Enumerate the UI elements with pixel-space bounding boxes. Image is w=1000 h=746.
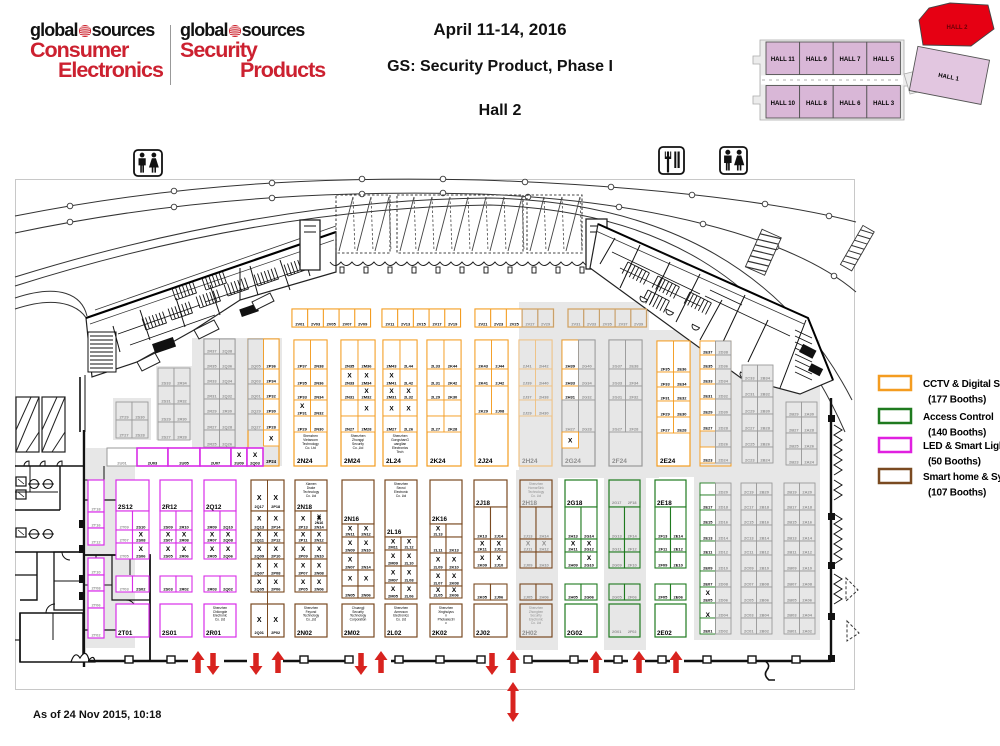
svg-text:2P29: 2P29 — [298, 427, 308, 432]
svg-text:2J08: 2J08 — [495, 409, 505, 414]
svg-text:2B25: 2B25 — [789, 444, 799, 449]
svg-text:2C33: 2C33 — [745, 376, 755, 381]
svg-text:2G33: 2G33 — [612, 381, 623, 386]
svg-text:2A12: 2A12 — [802, 550, 812, 555]
svg-text:2R01: 2R01 — [206, 630, 222, 637]
svg-text:2R09: 2R09 — [207, 525, 217, 530]
svg-text:2Q03: 2Q03 — [250, 461, 261, 466]
svg-text:2N08: 2N08 — [314, 571, 324, 576]
svg-text:2A02: 2A02 — [802, 629, 812, 634]
svg-text:X: X — [237, 452, 242, 459]
svg-text:X: X — [273, 495, 278, 502]
svg-text:X: X — [301, 546, 306, 553]
svg-text:2P07: 2P07 — [298, 571, 308, 576]
svg-text:2A16: 2A16 — [802, 520, 812, 525]
svg-text:2R34: 2R34 — [177, 381, 187, 386]
svg-text:2J09: 2J09 — [524, 563, 534, 568]
svg-text:2M36: 2M36 — [361, 364, 372, 369]
svg-text:LED & Smart Lighting: LED & Smart Lighting — [923, 441, 1000, 452]
svg-text:X: X — [480, 555, 485, 562]
svg-text:2Q06: 2Q06 — [223, 554, 234, 559]
svg-text:X: X — [587, 555, 592, 562]
svg-text:2K16: 2K16 — [432, 516, 448, 523]
svg-text:2H33: 2H33 — [565, 381, 575, 386]
svg-text:2H31: 2H31 — [565, 395, 575, 400]
svg-text:2V13: 2V13 — [401, 322, 411, 327]
svg-text:2S28: 2S28 — [135, 433, 145, 438]
svg-text:2M07: 2M07 — [388, 578, 399, 583]
svg-text:2R35: 2R35 — [207, 364, 217, 369]
svg-text:2T02: 2T02 — [91, 633, 101, 638]
svg-text:X: X — [301, 563, 306, 570]
svg-text:2B29: 2B29 — [789, 412, 799, 417]
svg-text:2Q34: 2Q34 — [222, 379, 233, 384]
svg-text:2V29: 2V29 — [541, 322, 551, 327]
svg-text:2P28: 2P28 — [267, 425, 277, 430]
svg-text:2B17: 2B17 — [787, 505, 797, 510]
svg-text:2C01: 2C01 — [744, 629, 754, 634]
svg-text:2G12: 2G12 — [584, 547, 595, 552]
svg-text:2N10: 2N10 — [314, 554, 324, 559]
svg-text:2K10: 2K10 — [449, 565, 459, 570]
svg-text:2S03: 2S03 — [163, 587, 173, 592]
svg-text:2M32: 2M32 — [361, 395, 372, 400]
svg-text:2S07: 2S07 — [163, 538, 173, 543]
svg-text:2L29: 2L29 — [431, 395, 441, 400]
svg-text:2A08: 2A08 — [802, 582, 812, 587]
svg-text:2Q11: 2Q11 — [254, 538, 264, 543]
svg-text:HALL 6: HALL 6 — [840, 101, 862, 107]
svg-text:2F14: 2F14 — [628, 534, 638, 539]
svg-text:2Q10: 2Q10 — [223, 525, 234, 530]
svg-text:2E17: 2E17 — [703, 505, 713, 510]
svg-text:2J06: 2J06 — [494, 595, 504, 600]
svg-text:2E23: 2E23 — [703, 458, 713, 463]
svg-text:2V15: 2V15 — [417, 322, 427, 327]
svg-text:2G13: 2G13 — [612, 534, 623, 539]
svg-text:X: X — [257, 563, 262, 570]
svg-text:2A30: 2A30 — [804, 412, 814, 417]
svg-text:2C25: 2C25 — [745, 442, 755, 447]
svg-text:2R29: 2R29 — [207, 409, 217, 414]
svg-text:2B05: 2B05 — [787, 598, 797, 603]
svg-text:2M28: 2M28 — [361, 427, 372, 432]
svg-text:HALL 11: HALL 11 — [771, 57, 796, 63]
svg-text:2L07: 2L07 — [433, 581, 443, 586]
svg-text:X: X — [257, 516, 262, 523]
svg-text:X: X — [348, 540, 353, 547]
svg-text:2C13: 2C13 — [744, 536, 754, 541]
svg-text:2C23: 2C23 — [745, 458, 755, 463]
svg-text:2K43: 2K43 — [478, 364, 488, 369]
svg-text:2K08: 2K08 — [449, 581, 459, 586]
svg-text:2G17: 2G17 — [612, 501, 621, 505]
svg-text:2V27: 2V27 — [525, 322, 534, 327]
svg-text:2P11: 2P11 — [298, 538, 308, 543]
svg-text:2B20: 2B20 — [759, 490, 769, 495]
svg-text:2A18: 2A18 — [802, 505, 812, 510]
svg-text:2B06: 2B06 — [759, 598, 769, 603]
svg-text:2B13: 2B13 — [787, 536, 797, 541]
svg-text:2M11: 2M11 — [388, 545, 399, 550]
svg-text:X: X — [257, 495, 262, 502]
svg-text:2T05: 2T05 — [120, 554, 130, 559]
svg-text:2T01: 2T01 — [118, 630, 133, 637]
svg-text:2B24: 2B24 — [760, 458, 770, 463]
svg-text:2D12: 2D12 — [718, 550, 728, 555]
svg-text:2V35: 2V35 — [603, 322, 613, 327]
svg-text:2D20: 2D20 — [718, 490, 728, 495]
svg-text:2G32: 2G32 — [582, 395, 593, 400]
svg-text:2E10: 2E10 — [674, 563, 684, 568]
svg-text:2V09: 2V09 — [358, 322, 368, 327]
svg-text:Tech: Tech — [397, 450, 404, 454]
svg-text:X: X — [257, 546, 262, 553]
svg-text:X: X — [300, 403, 305, 410]
svg-text:2E36: 2E36 — [677, 367, 687, 372]
svg-text:2K06: 2K06 — [449, 593, 459, 598]
svg-text:HALL 7: HALL 7 — [840, 57, 862, 63]
svg-text:2G31: 2G31 — [612, 395, 623, 400]
svg-text:X: X — [391, 586, 396, 593]
svg-text:Smart home & Systems: Smart home & Systems — [923, 472, 1000, 483]
svg-text:2H14: 2H14 — [539, 534, 549, 539]
svg-text:X: X — [364, 406, 369, 413]
svg-text:2Q05: 2Q05 — [251, 364, 262, 369]
svg-text:2F06: 2F06 — [628, 595, 638, 600]
svg-text:2F10: 2F10 — [628, 563, 638, 568]
svg-text:2Q08: 2Q08 — [223, 538, 234, 543]
svg-text:X: X — [407, 553, 412, 560]
svg-text:2B26: 2B26 — [760, 442, 770, 447]
svg-text:2P14: 2P14 — [271, 525, 281, 530]
svg-text:2E15: 2E15 — [703, 520, 713, 525]
svg-text:2J39: 2J39 — [523, 381, 533, 386]
svg-text:X: X — [452, 557, 457, 564]
svg-text:2L06: 2L06 — [404, 594, 414, 599]
svg-text:X: X — [182, 546, 187, 553]
svg-text:2P31: 2P31 — [298, 411, 308, 416]
svg-text:2P06: 2P06 — [271, 587, 281, 592]
svg-text:2Q26: 2Q26 — [222, 442, 233, 447]
svg-text:2Q02: 2Q02 — [223, 587, 234, 592]
svg-text:2F13: 2F13 — [658, 534, 668, 539]
svg-text:2S08: 2S08 — [136, 538, 146, 543]
svg-text:2M09: 2M09 — [388, 561, 399, 566]
svg-text:2G06: 2G06 — [584, 595, 595, 600]
svg-text:Co.,Ltd: Co.,Ltd — [353, 446, 364, 450]
svg-text:2B30: 2B30 — [760, 409, 770, 414]
svg-text:2Q07: 2Q07 — [254, 571, 265, 576]
svg-text:(50 Booths): (50 Booths) — [928, 457, 981, 468]
svg-text:2T09: 2T09 — [120, 525, 130, 530]
svg-text:2B16: 2B16 — [759, 520, 769, 525]
svg-text:2L42: 2L42 — [404, 381, 414, 386]
svg-text:2H05: 2H05 — [568, 595, 578, 600]
svg-text:2U03: 2U03 — [148, 461, 158, 466]
svg-text:2L32: 2L32 — [404, 395, 414, 400]
svg-text:2C03: 2C03 — [744, 613, 754, 618]
svg-text:2B19: 2B19 — [787, 490, 797, 495]
svg-text:2K41: 2K41 — [478, 381, 488, 386]
svg-text:2K02: 2K02 — [432, 630, 448, 637]
svg-text:2D34: 2D34 — [718, 379, 728, 384]
svg-text:2N16: 2N16 — [315, 521, 324, 525]
svg-text:2T12: 2T12 — [91, 540, 101, 545]
svg-text:2B32: 2B32 — [760, 392, 770, 397]
svg-text:2P10: 2P10 — [271, 554, 281, 559]
svg-text:2M27: 2M27 — [386, 427, 397, 432]
svg-text:2D06: 2D06 — [718, 598, 728, 603]
svg-text:2J10: 2J10 — [494, 563, 504, 568]
svg-text:2E06: 2E06 — [674, 595, 684, 600]
svg-text:2V19: 2V19 — [448, 322, 458, 327]
svg-text:2N14: 2N14 — [314, 525, 324, 530]
svg-text:2L10: 2L10 — [404, 561, 414, 566]
svg-text:2E31: 2E31 — [703, 394, 713, 399]
svg-text:2N35: 2N35 — [345, 364, 355, 369]
svg-text:2E37: 2E37 — [703, 350, 713, 355]
svg-text:2Q03: 2Q03 — [251, 379, 262, 384]
svg-text:2P13: 2P13 — [298, 525, 308, 530]
svg-text:2R02: 2R02 — [179, 587, 189, 592]
svg-text:2H12: 2H12 — [539, 547, 549, 552]
svg-text:2J11: 2J11 — [524, 547, 533, 552]
svg-text:2G09: 2G09 — [612, 563, 623, 568]
svg-text:2E07: 2E07 — [703, 582, 713, 587]
svg-text:2D24: 2D24 — [718, 458, 728, 463]
svg-text:2L33: 2L33 — [431, 364, 441, 369]
svg-text:2L27: 2L27 — [431, 427, 441, 432]
svg-text:2V05: 2V05 — [327, 322, 337, 327]
svg-text:2A10: 2A10 — [802, 566, 812, 571]
svg-text:2B12: 2B12 — [759, 550, 769, 555]
svg-text:X: X — [348, 557, 353, 564]
svg-text:2C29: 2C29 — [745, 409, 755, 414]
svg-text:As of 24 Nov 2015, 10:18: As of 24 Nov 2015, 10:18 — [33, 709, 161, 721]
svg-text:2N07: 2N07 — [345, 565, 355, 570]
svg-text:2J41: 2J41 — [523, 364, 533, 369]
svg-text:2P05: 2P05 — [298, 587, 308, 592]
svg-text:Co. Ltd: Co. Ltd — [215, 617, 226, 621]
svg-text:2G01: 2G01 — [612, 630, 621, 634]
svg-text:2P12: 2P12 — [271, 538, 281, 543]
svg-text:2T27: 2T27 — [119, 433, 129, 438]
svg-text:2E27: 2E27 — [703, 426, 713, 431]
svg-text:2S05: 2S05 — [163, 554, 173, 559]
svg-text:Access Control: Access Control — [923, 412, 994, 423]
svg-text:2Q28: 2Q28 — [222, 425, 233, 430]
svg-text:2L24: 2L24 — [386, 458, 401, 465]
svg-text:X: X — [364, 373, 369, 380]
svg-text:2V21: 2V21 — [478, 322, 488, 327]
svg-text:Co. Ltd: Co. Ltd — [396, 617, 407, 621]
svg-text:X: X — [317, 514, 322, 521]
svg-text:2E30: 2E30 — [677, 412, 687, 417]
svg-text:X: X — [273, 617, 278, 624]
svg-text:(140 Booths): (140 Booths) — [928, 428, 986, 439]
svg-text:2K42: 2K42 — [448, 381, 458, 386]
svg-text:2P08: 2P08 — [271, 571, 281, 576]
svg-text:2J44: 2J44 — [495, 364, 505, 369]
svg-text:X: X — [210, 546, 215, 553]
svg-text:2C11: 2C11 — [744, 550, 754, 555]
svg-text:2R33: 2R33 — [207, 379, 217, 384]
svg-text:2R27: 2R27 — [207, 425, 217, 430]
svg-text:2P37: 2P37 — [298, 364, 308, 369]
svg-text:2E02: 2E02 — [657, 630, 672, 637]
svg-text:2P35: 2P35 — [298, 381, 308, 386]
svg-text:2G27: 2G27 — [612, 427, 623, 432]
svg-text:2B10: 2B10 — [759, 566, 769, 571]
svg-text:HALL 9: HALL 9 — [806, 57, 828, 63]
svg-text:2M31: 2M31 — [386, 395, 397, 400]
svg-text:2Q01: 2Q01 — [251, 394, 262, 399]
svg-text:2K13: 2K13 — [449, 548, 459, 553]
svg-text:2B11: 2B11 — [787, 550, 797, 555]
svg-text:X: X — [407, 586, 412, 593]
svg-text:2D10: 2D10 — [718, 566, 728, 571]
svg-text:2P36: 2P36 — [267, 364, 277, 369]
svg-text:2N11: 2N11 — [345, 532, 355, 537]
svg-text:X: X — [452, 573, 457, 580]
svg-text:2D14: 2D14 — [718, 536, 728, 541]
svg-text:2G02: 2G02 — [567, 630, 583, 637]
svg-text:2T16: 2T16 — [91, 523, 101, 528]
svg-text:X: X — [348, 576, 353, 583]
svg-text:2H13: 2H13 — [568, 534, 578, 539]
svg-text:2B14: 2B14 — [759, 536, 769, 541]
svg-text:X: X — [317, 563, 322, 570]
svg-text:2V11: 2V11 — [385, 322, 395, 327]
svg-text:2F02: 2F02 — [628, 630, 637, 634]
svg-text:2D18: 2D18 — [718, 505, 728, 510]
svg-text:HALL 3: HALL 3 — [873, 101, 895, 107]
svg-text:2S12: 2S12 — [118, 504, 133, 511]
svg-text:2F12: 2F12 — [628, 547, 638, 552]
svg-text:2N12: 2N12 — [314, 538, 324, 543]
svg-text:2F34: 2F34 — [629, 381, 639, 386]
svg-text:2U09: 2U09 — [234, 461, 244, 466]
svg-text:2S01: 2S01 — [162, 630, 177, 637]
svg-text:2A04: 2A04 — [802, 613, 812, 618]
svg-text:2C07: 2C07 — [744, 582, 754, 587]
svg-text:2G40: 2G40 — [582, 364, 593, 369]
svg-text:2D30: 2D30 — [718, 410, 728, 415]
svg-text:X: X — [226, 546, 231, 553]
svg-text:2D26: 2D26 — [718, 442, 728, 447]
svg-text:2Q38: 2Q38 — [222, 349, 233, 354]
svg-text:2H09: 2H09 — [568, 563, 578, 568]
svg-text:2D04: 2D04 — [718, 613, 728, 618]
svg-text:2S09: 2S09 — [163, 525, 173, 530]
svg-text:HALL 2: HALL 2 — [947, 25, 969, 31]
svg-text:2G10: 2G10 — [584, 563, 595, 568]
svg-text:2N09: 2N09 — [345, 548, 355, 553]
svg-text:X: X — [301, 579, 306, 586]
svg-text:2R06: 2R06 — [179, 554, 189, 559]
svg-text:X: X — [301, 516, 306, 523]
svg-text:2A24: 2A24 — [804, 460, 814, 465]
svg-text:2N36: 2N36 — [314, 381, 324, 386]
svg-text:2B28: 2B28 — [760, 426, 770, 431]
svg-text:2N18: 2N18 — [297, 504, 313, 511]
svg-text:X: X — [269, 436, 274, 443]
svg-text:2U07: 2U07 — [211, 461, 221, 466]
svg-text:2D16: 2D16 — [718, 520, 728, 525]
svg-text:2N05: 2N05 — [345, 593, 355, 598]
svg-text:2V33: 2V33 — [587, 322, 597, 327]
svg-text:2P09: 2P09 — [298, 554, 308, 559]
svg-text:2H27: 2H27 — [565, 427, 575, 432]
svg-text:2B07: 2B07 — [787, 582, 797, 587]
svg-text:2J05: 2J05 — [524, 595, 534, 600]
svg-text:X: X — [257, 579, 262, 586]
svg-text:X: X — [347, 373, 352, 380]
svg-text:2D28: 2D28 — [718, 426, 728, 431]
svg-text:2L16: 2L16 — [387, 529, 402, 536]
svg-text:2N32: 2N32 — [314, 411, 324, 416]
svg-text:2S29: 2S29 — [161, 417, 171, 422]
svg-text:2H10: 2H10 — [539, 563, 549, 568]
svg-text:2M24: 2M24 — [344, 458, 361, 465]
svg-text:2E09: 2E09 — [703, 566, 713, 571]
svg-text:2D32: 2D32 — [718, 394, 728, 399]
svg-text:X: X — [568, 438, 573, 445]
svg-text:2T29: 2T29 — [119, 415, 129, 420]
svg-text:2S10: 2S10 — [136, 525, 146, 530]
svg-text:2V39: 2V39 — [634, 322, 644, 327]
svg-text:Co. Ltd: Co. Ltd — [531, 494, 542, 498]
svg-text:2L31: 2L31 — [431, 381, 441, 386]
svg-text:2A28: 2A28 — [804, 428, 814, 433]
svg-text:2A06: 2A06 — [802, 598, 812, 603]
svg-text:2L13: 2L13 — [433, 532, 443, 537]
svg-text:2K44: 2K44 — [448, 364, 458, 369]
svg-text:2B09: 2B09 — [787, 566, 797, 571]
svg-text:2Q01: 2Q01 — [255, 631, 264, 635]
svg-text:2B02: 2B02 — [759, 629, 769, 634]
svg-text:2R30: 2R30 — [222, 409, 232, 414]
svg-text:2R30: 2R30 — [177, 417, 187, 422]
svg-text:2L12: 2L12 — [404, 545, 414, 550]
svg-text:2F05: 2F05 — [658, 595, 668, 600]
svg-text:2L05: 2L05 — [433, 593, 443, 598]
svg-text:2T03: 2T03 — [120, 587, 130, 592]
svg-text:2R05: 2R05 — [207, 554, 217, 559]
svg-text:2F11: 2F11 — [658, 547, 668, 552]
svg-text:2L44: 2L44 — [404, 364, 414, 369]
svg-text:2S30: 2S30 — [135, 415, 145, 420]
svg-text:(107 Booths): (107 Booths) — [928, 488, 986, 499]
svg-text:2C27: 2C27 — [745, 426, 755, 431]
svg-text:2L02: 2L02 — [387, 630, 402, 637]
svg-text:CCTV & Digital Surveillance: CCTV & Digital Surveillance — [923, 379, 1000, 390]
svg-text:2V23: 2V23 — [494, 322, 504, 327]
svg-text:2E12: 2E12 — [674, 547, 684, 552]
svg-text:2Q09: 2Q09 — [254, 554, 265, 559]
svg-text:2E05: 2E05 — [703, 598, 713, 603]
svg-text:2E13: 2E13 — [703, 536, 713, 541]
svg-text:2P32: 2P32 — [267, 394, 277, 399]
svg-text:2E35: 2E35 — [703, 364, 713, 369]
svg-text:2N31: 2N31 — [345, 395, 355, 400]
svg-text:2K05: 2K05 — [477, 595, 487, 600]
svg-text:HALL 5: HALL 5 — [873, 57, 895, 63]
svg-text:X: X — [389, 373, 394, 380]
svg-text:2R10: 2R10 — [179, 525, 189, 530]
svg-text:2E38: 2E38 — [629, 364, 639, 369]
